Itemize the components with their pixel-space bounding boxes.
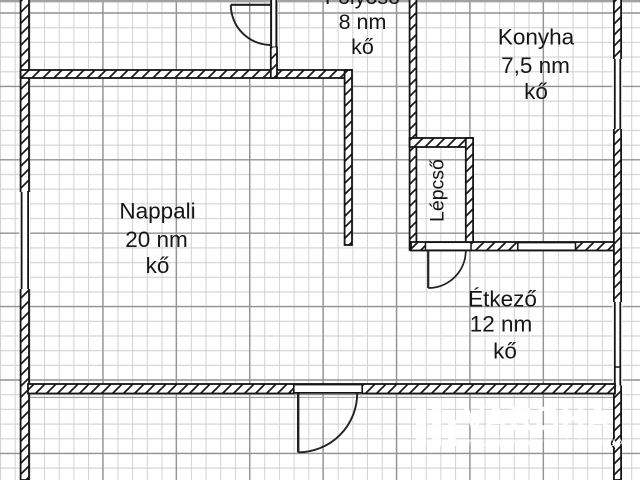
svg-text:12 nm: 12 nm [470, 312, 533, 337]
svg-text:Konyha: Konyha [498, 24, 575, 49]
svg-text:kő: kő [146, 253, 170, 278]
svg-text:Nappali: Nappali [119, 199, 195, 224]
svg-text:20 nm: 20 nm [125, 227, 188, 252]
svg-text:kő: kő [493, 339, 517, 364]
svg-text:7,5 nm: 7,5 nm [501, 53, 570, 78]
svg-text:INGATLANKÖZVETÍTŐ IRODA: INGATLANKÖZVETÍTŐ IRODA [464, 438, 625, 448]
svg-text:kő: kő [524, 79, 548, 104]
svg-text:Folyosó: Folyosó [325, 0, 400, 9]
svg-text:VARGHA: VARGHA [463, 400, 611, 438]
svg-text:Lépcső: Lépcső [427, 159, 449, 222]
svg-text:Étkező: Étkező [468, 287, 537, 312]
svg-text:8 nm: 8 nm [339, 10, 387, 34]
svg-text:kő: kő [351, 35, 374, 59]
